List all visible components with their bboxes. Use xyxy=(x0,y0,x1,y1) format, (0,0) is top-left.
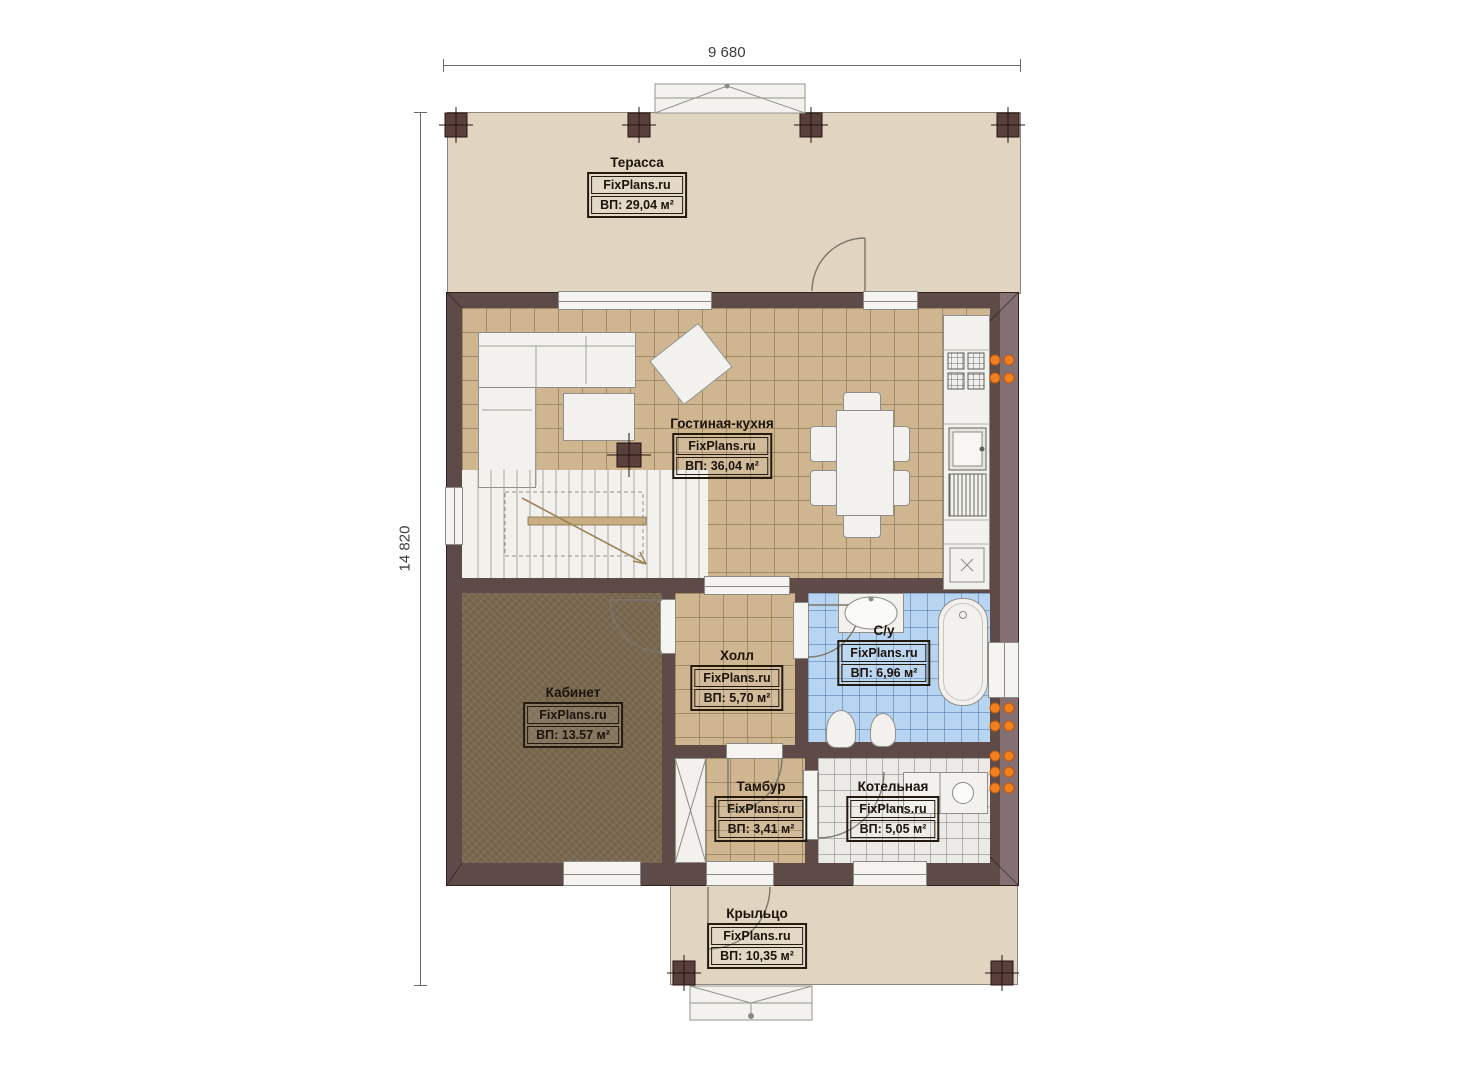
room-label-vestibule: Тамбур FixPlans.ru ВП: 3,41 м² xyxy=(714,779,807,842)
room-plate: FixPlans.ru ВП: 36,04 м² xyxy=(672,433,772,479)
closet xyxy=(675,758,706,863)
brand-label: FixPlans.ru xyxy=(694,669,779,687)
dimension-tick xyxy=(414,985,427,986)
room-plate: FixPlans.ru ВП: 13.57 м² xyxy=(523,702,623,748)
room-name: Терасса xyxy=(587,155,687,170)
terrace-door-opening xyxy=(863,291,918,310)
brand-label: FixPlans.ru xyxy=(527,706,619,724)
floor-plan: 9 680 14 820 xyxy=(0,0,1473,1080)
window-mullion xyxy=(854,874,926,875)
room-label-bathroom: С/у FixPlans.ru ВП: 6,96 м² xyxy=(837,623,930,686)
dimension-width-label: 9 680 xyxy=(708,44,746,61)
room-label-terrace: Терасса FixPlans.ru ВП: 29,04 м² xyxy=(587,155,687,218)
window-mullion xyxy=(454,488,455,544)
window xyxy=(563,861,641,886)
brand-label: FixPlans.ru xyxy=(591,176,683,194)
room-plate: FixPlans.ru ВП: 29,04 м² xyxy=(587,172,687,218)
room-area: ВП: 3,41 м² xyxy=(718,820,803,838)
right-wall-band xyxy=(1000,293,1018,885)
dining-chair xyxy=(810,470,838,506)
bidet xyxy=(870,713,896,747)
room-area: ВП: 10,35 м² xyxy=(711,947,803,965)
brand-label: FixPlans.ru xyxy=(718,800,803,818)
room-area: ВП: 6,96 м² xyxy=(841,664,926,682)
dimension-line-left xyxy=(420,112,421,985)
bathroom-door-opening xyxy=(793,602,809,659)
room-label-boiler: Котельная FixPlans.ru ВП: 5,05 м² xyxy=(846,779,939,842)
room-name: Котельная xyxy=(846,779,939,794)
dimension-tick xyxy=(443,59,444,72)
front-door-opening xyxy=(706,861,774,886)
room-area: ВП: 5,05 м² xyxy=(850,820,935,838)
window xyxy=(558,291,712,310)
dimension-tick xyxy=(1020,59,1021,72)
room-area: ВП: 13.57 м² xyxy=(527,726,619,744)
porch-steps xyxy=(690,986,812,1020)
passage-opening xyxy=(704,576,790,595)
room-label-porch: Крыльцо FixPlans.ru ВП: 10,35 м² xyxy=(707,906,807,969)
room-plate: FixPlans.ru ВП: 10,35 м² xyxy=(707,923,807,969)
window xyxy=(445,487,463,545)
toilet xyxy=(826,710,856,748)
window xyxy=(988,642,1019,698)
dimension-height-label: 14 820 xyxy=(396,526,413,572)
room-area: ВП: 36,04 м² xyxy=(676,457,768,475)
brand-label: FixPlans.ru xyxy=(711,927,803,945)
brand-label: FixPlans.ru xyxy=(850,800,935,818)
room-plate: FixPlans.ru ВП: 5,05 м² xyxy=(846,796,939,842)
bathtub-inner xyxy=(943,603,983,701)
window-mullion xyxy=(564,874,640,875)
room-name: Кабинет xyxy=(523,685,623,700)
terrace-deck xyxy=(447,112,1021,294)
window-mullion xyxy=(705,586,789,587)
sofa xyxy=(478,332,636,388)
room-plate: FixPlans.ru ВП: 3,41 м² xyxy=(714,796,807,842)
room-name: Гостиная-кухня xyxy=(670,416,773,431)
office-door-opening xyxy=(660,599,676,654)
kitchen-counter xyxy=(943,315,990,590)
dimension-tick xyxy=(414,112,427,113)
brand-label: FixPlans.ru xyxy=(676,437,768,455)
room-label-office: Кабинет FixPlans.ru ВП: 13.57 м² xyxy=(523,685,623,748)
room-label-hall: Холл FixPlans.ru ВП: 5,70 м² xyxy=(690,648,783,711)
window-mullion xyxy=(1004,643,1005,697)
room-name: С/у xyxy=(837,623,930,638)
dining-table xyxy=(836,410,894,516)
coffee-table xyxy=(563,393,635,441)
room-name: Тамбур xyxy=(714,779,807,794)
dimension-line-top xyxy=(443,65,1021,66)
room-area: ВП: 29,04 м² xyxy=(591,196,683,214)
room-area: ВП: 5,70 м² xyxy=(694,689,779,707)
terrace-steps xyxy=(655,84,805,114)
window-mullion xyxy=(864,301,917,302)
dining-chair xyxy=(810,426,838,462)
window-mullion xyxy=(707,874,773,875)
room-label-living: Гостиная-кухня FixPlans.ru ВП: 36,04 м² xyxy=(670,416,773,479)
room-plate: FixPlans.ru ВП: 5,70 м² xyxy=(690,665,783,711)
vestibule-door-opening xyxy=(726,743,783,759)
window-mullion xyxy=(559,301,711,302)
room-plate: FixPlans.ru ВП: 6,96 м² xyxy=(837,640,930,686)
window xyxy=(853,861,927,886)
room-name: Холл xyxy=(690,648,783,663)
brand-label: FixPlans.ru xyxy=(841,644,926,662)
room-name: Крыльцо xyxy=(707,906,807,921)
